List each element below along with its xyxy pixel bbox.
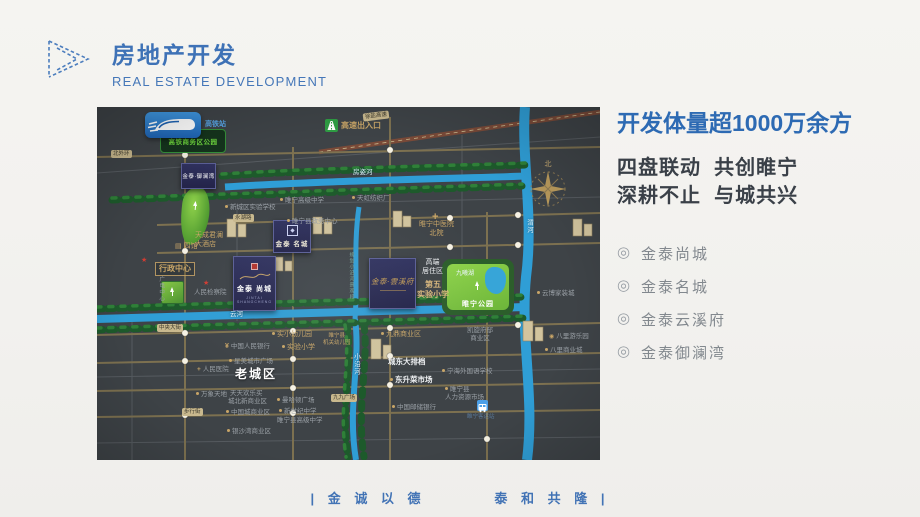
map-label: 实验小学 bbox=[282, 343, 315, 352]
map-label: 中央大街 bbox=[157, 324, 183, 332]
map-label: 实小幼儿园 bbox=[272, 330, 312, 339]
map-label: 天成君澜 大酒店 bbox=[195, 231, 223, 249]
map-label: 步行街 bbox=[182, 408, 203, 416]
map-label: 新世纪中学 bbox=[279, 408, 317, 416]
map-label: 永湖路 bbox=[233, 214, 254, 222]
map-label: 高速出入口 bbox=[341, 121, 381, 131]
map-label: 八里游乐园 bbox=[549, 333, 589, 342]
map-labels: 高铁站徐盐高速北外环高速出入口睢宁高级中学新城区实验学校天虹纺织厂永湖路睢宁县政… bbox=[97, 107, 600, 460]
map-label: ★ bbox=[141, 256, 147, 265]
map-label: 睢宁中医院 北院 bbox=[419, 220, 454, 238]
map-label: 人民医院 bbox=[197, 366, 229, 374]
map-label: 云博家装城 bbox=[537, 290, 575, 298]
map-label: 凯旋府邸 商业区 bbox=[467, 327, 493, 344]
map-label: 规划小沿河景观段 bbox=[348, 252, 355, 300]
map-label: 东升菜市场 bbox=[390, 375, 433, 385]
map-label: 宁海外国语学校 bbox=[442, 368, 493, 376]
map-label: 天虹纺织厂 bbox=[352, 195, 390, 203]
dashed-arrow-icon bbox=[42, 36, 96, 82]
panel-slogan-line1: 四盘联动 共创睢宁 bbox=[617, 154, 912, 182]
page-subtitle: REAL ESTATE DEVELOPMENT bbox=[112, 74, 327, 89]
map-label: 老城区 bbox=[235, 367, 277, 383]
map-label: 中国邮储银行 bbox=[392, 404, 436, 412]
map-label: 睢宁客运站 bbox=[467, 414, 495, 421]
map-label: 云河 bbox=[230, 311, 243, 319]
map-label: 城北新商业区 bbox=[228, 398, 267, 406]
project-item: 金泰尚城 bbox=[617, 243, 912, 264]
map-label: 新城区实验学校 bbox=[225, 204, 276, 212]
map-label: 睢宁县政务中心 bbox=[287, 218, 338, 226]
map-label: 行政中心 bbox=[155, 262, 195, 276]
map-label: 曼哈顿广场 bbox=[277, 397, 315, 405]
map-label: 小沿河 bbox=[351, 353, 359, 376]
map-label: 星美城市广场 bbox=[229, 358, 273, 366]
map-label: 人民检察院 bbox=[194, 289, 227, 297]
city-map: 高铁商务区公园 九曦湖 睢宁公园 金泰·御澜湾 金泰 名城 金泰 尚城 bbox=[97, 107, 600, 460]
map-label: 高铁站 bbox=[205, 120, 226, 129]
project-item: 金泰名城 bbox=[617, 276, 912, 297]
map-label: 八里商业城 bbox=[545, 347, 583, 355]
map-label: 房姿河 bbox=[353, 169, 373, 177]
info-panel: 开发体量超1000万余方 四盘联动 共创睢宁 深耕不止 与城共兴 金泰尚城金泰名… bbox=[617, 104, 912, 363]
map-label: 银沙湾商业区 bbox=[227, 428, 271, 436]
project-item: 金泰云溪府 bbox=[617, 309, 912, 330]
map-label: 睢宁县高级中学 bbox=[277, 417, 323, 425]
map-label: 高端 居住区 bbox=[422, 258, 443, 276]
map-label: 九鼎商业区 bbox=[381, 330, 421, 339]
map-label: 广电中心 bbox=[157, 276, 164, 302]
map-label: 中国城商业区 bbox=[226, 409, 270, 417]
panel-slogan-line2: 深耕不止 与城共兴 bbox=[617, 182, 912, 210]
project-list: 金泰尚城金泰名城金泰云溪府金泰御澜湾 bbox=[617, 231, 912, 363]
map-label: 渭河 bbox=[524, 219, 532, 234]
map-label: 睢宁县 人力资源市场 bbox=[445, 386, 484, 403]
panel-headline: 开发体量超1000万余方 bbox=[617, 104, 912, 138]
map-label: 中国人民银行 bbox=[225, 342, 270, 351]
map-label: 睢宁县 机关幼儿园 bbox=[323, 333, 351, 347]
map-label: 睢宁高级中学 bbox=[280, 197, 324, 205]
page-header: 房地产开发 REAL ESTATE DEVELOPMENT bbox=[42, 36, 327, 89]
map-label: 第五 实验小学 bbox=[417, 280, 449, 301]
project-item: 金泰御澜湾 bbox=[617, 342, 912, 363]
map-label: 九九广场 bbox=[331, 394, 357, 402]
footer-motto: | 金 诚 以 德 泰 和 共 隆 | bbox=[0, 488, 920, 507]
map-label: 城东大排档 bbox=[388, 357, 426, 367]
map-label: 万象天地 bbox=[196, 391, 227, 399]
page-title: 房地产开发 bbox=[112, 36, 327, 70]
map-label: ★ bbox=[203, 279, 209, 288]
map-label: 北外环 bbox=[111, 150, 132, 158]
